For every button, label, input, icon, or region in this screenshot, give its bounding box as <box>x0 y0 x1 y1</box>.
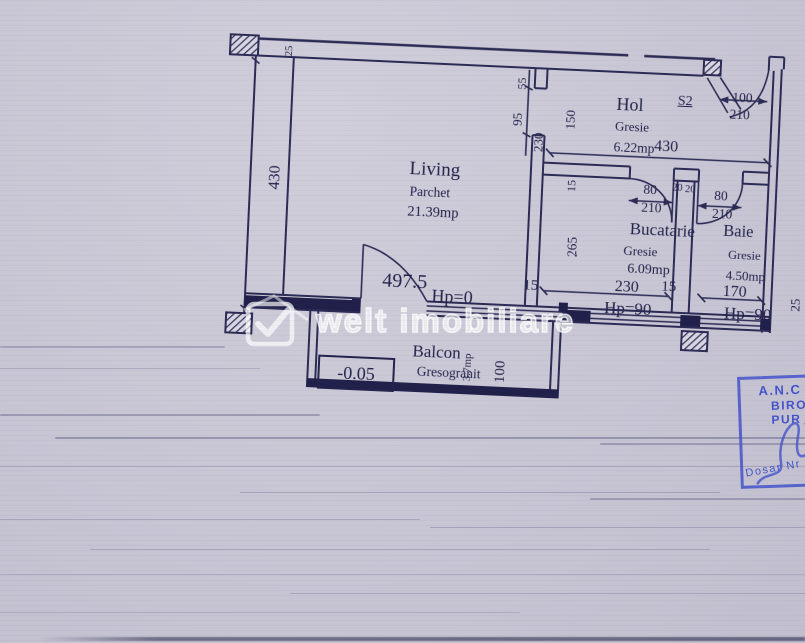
bucatarie-name: Bucatarie <box>629 220 695 240</box>
living-area: 21.39mp <box>407 204 459 221</box>
entrance-jamb-hatch <box>703 60 721 76</box>
balcon-level-marker: -0.05 <box>317 355 395 392</box>
living-wall-dim: 15 <box>523 278 539 294</box>
kitchen-door-width: 80 <box>643 182 657 196</box>
divider-opening-dim: 95 <box>510 113 524 127</box>
bath-door-height: 210 <box>712 207 733 221</box>
hol-finish: Gresie <box>615 119 649 134</box>
scanned-floorplan-page: { "plan": { "living": {"name":"Living","… <box>0 0 805 643</box>
living-width-dim: 497.5 <box>382 270 428 292</box>
entrance-door-height: 210 <box>729 107 750 121</box>
bucatarie-finish: Gresie <box>623 244 657 259</box>
baie-finish: Gresie <box>728 249 761 263</box>
hol-width-dim: 430 <box>654 139 679 156</box>
registry-stamp: A.N.C BIRO PUR Dosar Nr <box>737 373 805 489</box>
divider-seg-top-dim: 55 <box>516 77 529 90</box>
column-bottom-right <box>681 331 708 351</box>
wall-thickness-dim: 25 <box>285 45 296 56</box>
bath-door-width: 80 <box>714 189 728 203</box>
balcon-name: Balcon <box>412 342 461 361</box>
divider-wall-dim: 15 <box>565 180 578 193</box>
balcon-level-value: -0.05 <box>337 362 375 385</box>
balcon-area: 3.7mp <box>462 353 474 381</box>
hol-name: Hol <box>616 95 644 114</box>
entrance-door-width: 100 <box>732 90 753 104</box>
kitchen-parapet: Hp=90 <box>604 299 652 318</box>
kitchen-door-height: 210 <box>641 200 662 214</box>
living-finish: Parchet <box>409 185 450 200</box>
bath-parapet: Hp=90 <box>724 304 772 323</box>
balcon-depth-dim: 100 <box>493 360 509 383</box>
living-height-dim: 430 <box>267 165 284 190</box>
jamb-right-dim: 20 <box>685 185 696 196</box>
stamp-signature-icon <box>740 376 805 486</box>
hol-area: 6.22mp <box>613 140 654 155</box>
jamb-left-dim: 20 <box>672 183 683 194</box>
column-top-left <box>230 34 259 55</box>
living-name: Living <box>409 159 460 180</box>
bath-width-dim: 170 <box>722 284 747 301</box>
living-parapet: Hp=0 <box>431 287 473 307</box>
kitchen-height-dim: 265 <box>565 237 579 258</box>
bath-edge-dim: 25 <box>788 298 802 312</box>
baie-name: Baie <box>723 223 754 241</box>
kitchen-wall-dim: 15 <box>661 280 677 296</box>
column-bottom-left <box>225 312 252 333</box>
kitchen-width-dim: 230 <box>614 279 639 296</box>
divider-seg-bottom-dim: 230 <box>531 132 545 152</box>
hol-width-side-dim: 150 <box>563 110 577 130</box>
scan-edge-shadow <box>40 637 805 641</box>
baie-area: 4.50mp <box>725 268 765 283</box>
bucatarie-area: 6.09mp <box>627 263 670 279</box>
entrance-door-ref: S2 <box>678 95 693 110</box>
floorplan: Living Parchet 21.39mp Hol Gresie 6.22mp… <box>208 30 805 438</box>
